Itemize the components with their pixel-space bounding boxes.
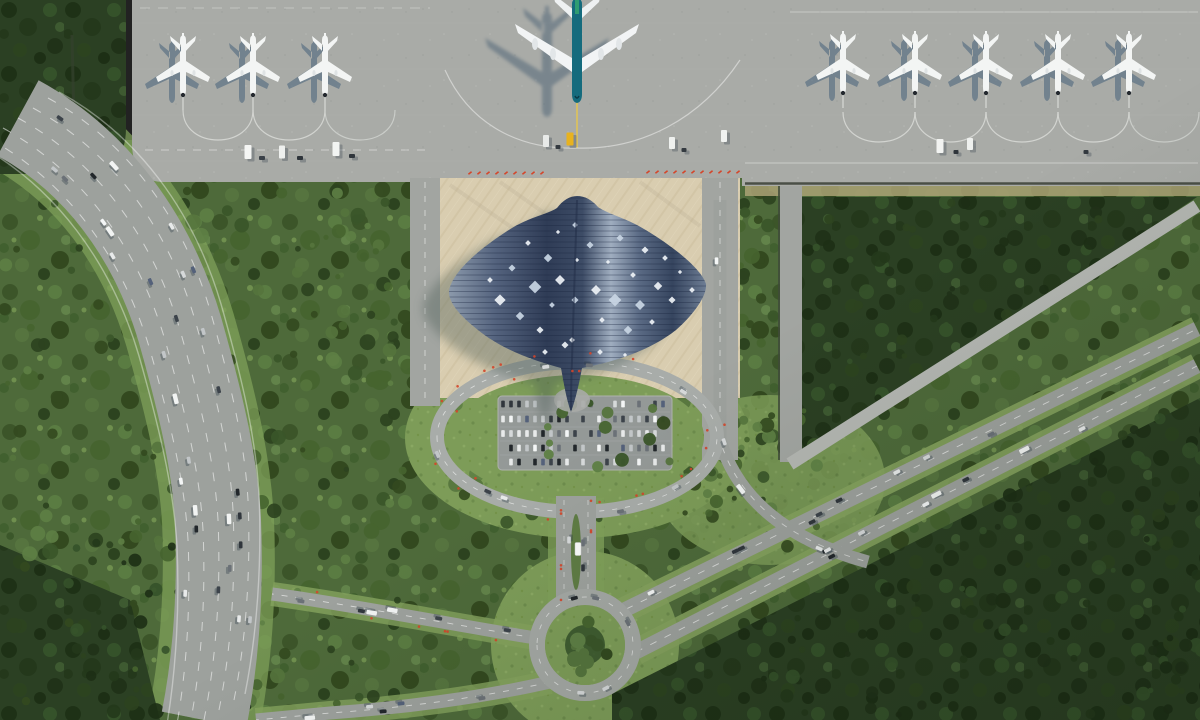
vignette xyxy=(0,0,1200,720)
aerial-render-stage xyxy=(0,0,1200,720)
airport-masterplan-render xyxy=(0,0,1200,720)
